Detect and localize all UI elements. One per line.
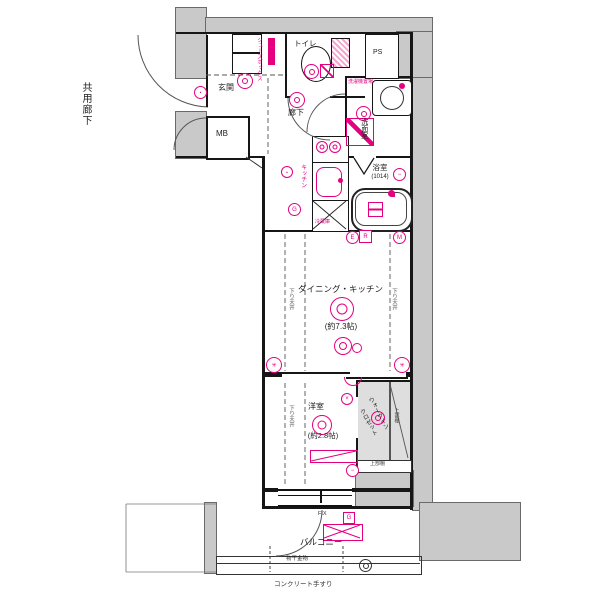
label-balcony: バルコニー	[300, 538, 342, 547]
label-kitchen: キッチン	[299, 164, 306, 188]
label-common-corridor: 共用廊下	[80, 82, 91, 126]
label-dining-kitchen-size: (約7.3帖)	[298, 323, 384, 332]
neighbor-balcony-lines	[126, 504, 216, 572]
exhaust-symbol: E	[346, 231, 359, 244]
label-fix-window: FIX	[318, 511, 327, 517]
label-toilet: トイレ	[294, 40, 317, 48]
label-pipe-space: PS	[373, 49, 382, 57]
floor-plan: ・ − ・ G E R M ✳ ✳ × − G 共用廊下 玄関 MB シューズボ…	[0, 0, 600, 600]
toilet-outlet	[320, 64, 334, 78]
stove-burner-right	[329, 141, 341, 153]
water-heater-label-box: G	[343, 512, 355, 524]
gas-symbol: G	[288, 203, 301, 216]
entrance-light	[237, 73, 253, 89]
label-meter-box: MB	[216, 130, 228, 139]
label-lowered-ceiling-dk-left: 下り天井	[288, 288, 294, 310]
label-bathroom: 浴室	[362, 164, 398, 172]
range-symbol: R	[359, 230, 372, 243]
western-room-detector: ×	[341, 393, 353, 405]
label-upper-shelf-bottom: 上部棚	[370, 462, 385, 468]
label-refrigerator: 冷蔵庫	[315, 220, 330, 226]
western-room-outlet: −	[346, 464, 359, 477]
dining-table-icon	[334, 337, 352, 355]
partition-symbol-right: ✳	[394, 357, 410, 373]
label-hallway: 廊下	[288, 109, 304, 118]
label-lowered-ceiling-dk-right: 下り天井	[391, 288, 397, 310]
meter-symbol: M	[393, 231, 406, 244]
sink-faucet	[338, 178, 343, 183]
doorbell-symbol: ・	[194, 86, 207, 99]
label-upper-shelf-side: 上部棚	[393, 408, 399, 423]
mb-door-arc	[174, 118, 206, 150]
label-laundry-space: 洗濯機置場	[348, 80, 373, 86]
label-western-room-size: (約2.8帖)	[298, 432, 348, 440]
bath-remote	[368, 202, 383, 217]
label-western-room: 洋室	[308, 403, 324, 412]
shower-icon	[388, 190, 395, 197]
label-lowered-ceiling-room: 下り天井	[288, 405, 294, 427]
vanity-faucet	[399, 83, 405, 89]
entry-step-line	[246, 157, 262, 168]
label-washroom: 洗面室	[360, 118, 368, 139]
kitchen-symbol: ・	[281, 166, 293, 178]
label-dining-kitchen: ダイニング・キッチン	[288, 285, 393, 294]
label-concrete-handrail: コンクリート手すり	[274, 581, 333, 588]
washroom-door-arc	[307, 94, 345, 132]
label-shoe-box: シューズボックス	[256, 37, 262, 71]
dining-outlet	[352, 343, 362, 353]
toilet-light	[304, 64, 319, 79]
stove-burner-left	[316, 141, 328, 153]
label-laundry-hardware: 物干金物	[286, 556, 308, 562]
western-room-counter	[310, 450, 358, 463]
label-bathroom-size: (1014)	[360, 174, 400, 181]
label-entrance: 玄関	[218, 84, 234, 93]
hall-light	[289, 92, 305, 108]
partition-symbol-left: ✳	[266, 357, 282, 373]
dining-kitchen-light	[330, 297, 354, 321]
balcony-door-arc	[276, 510, 322, 556]
shoe-box-highlight	[268, 38, 275, 65]
